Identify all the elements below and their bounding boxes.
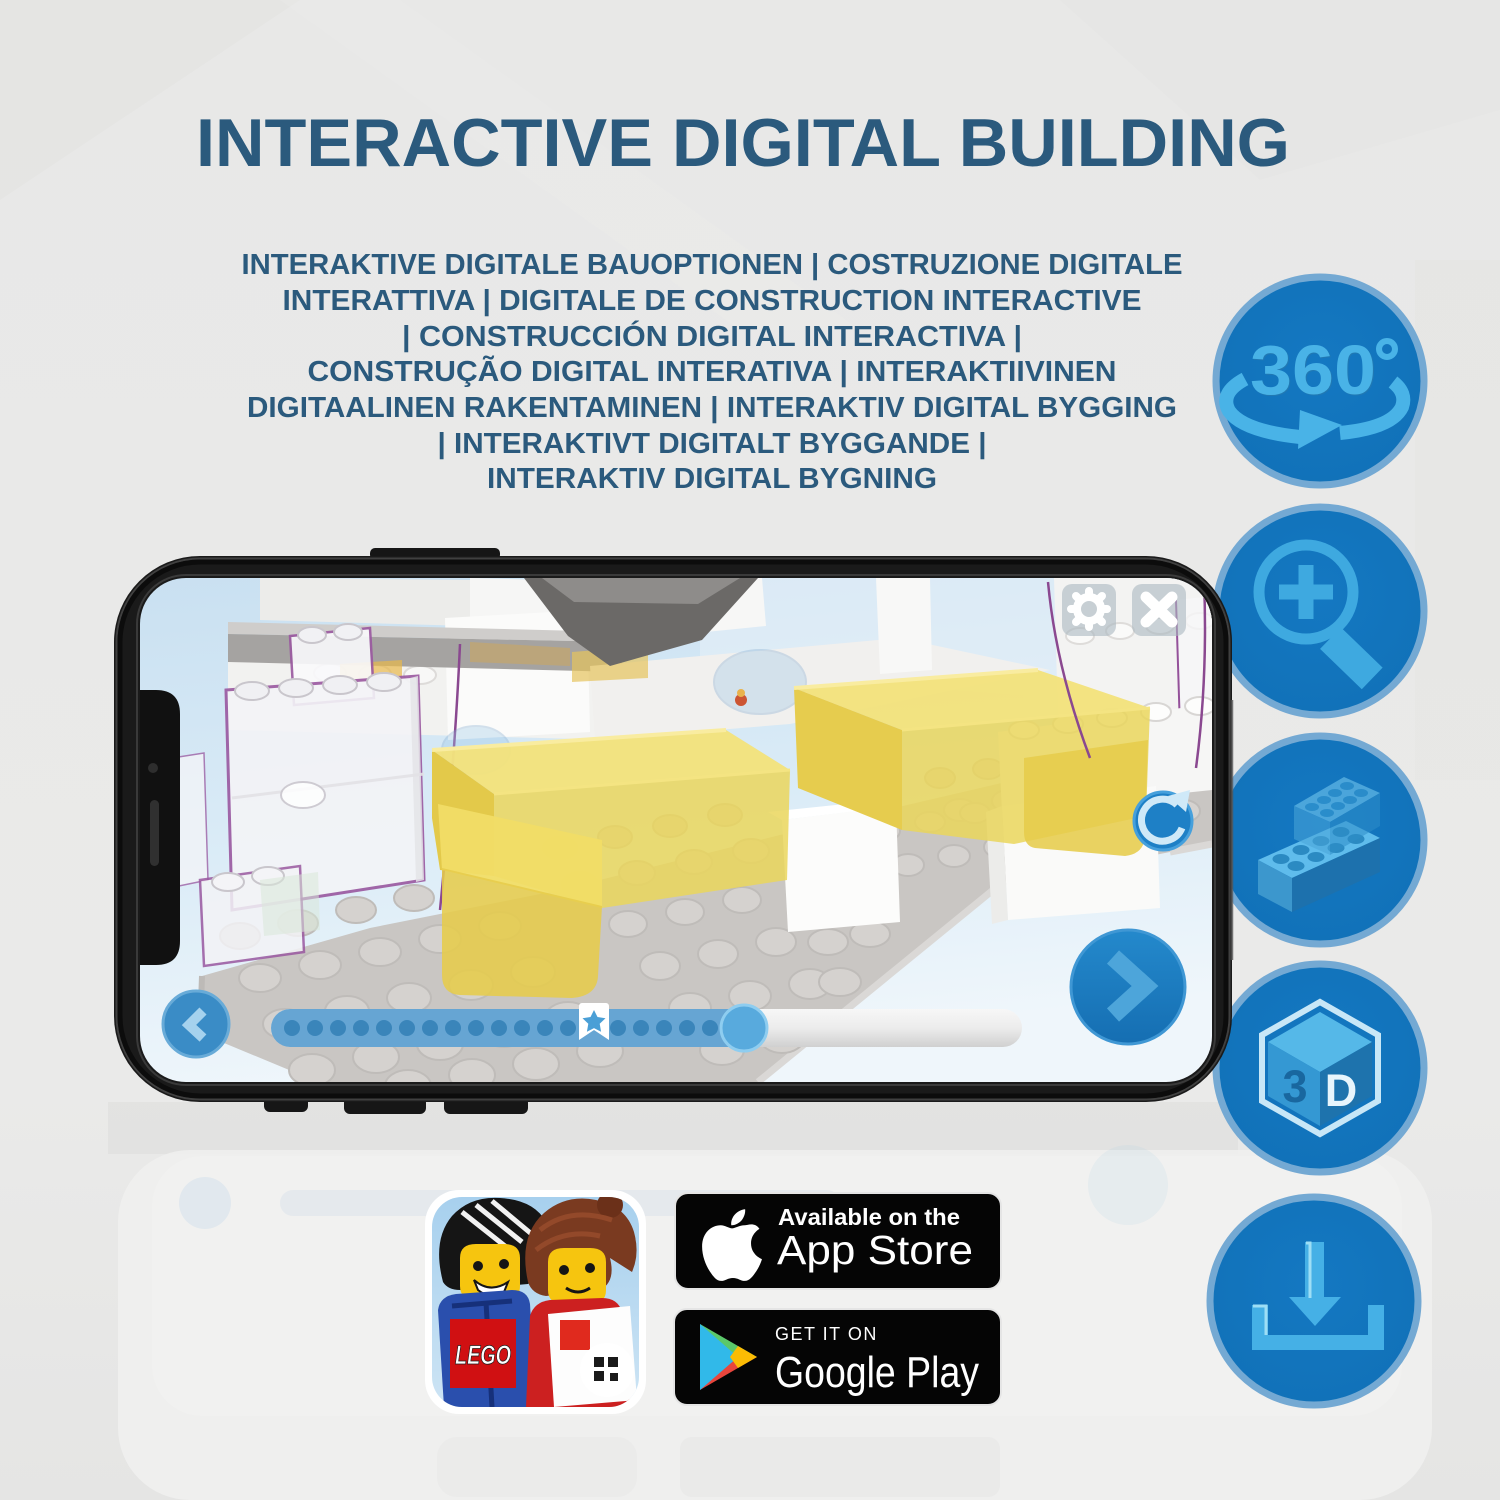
svg-text:Google Play: Google Play xyxy=(775,1348,979,1397)
svg-text:INTERACTIVE DIGITAL BUILDING: INTERACTIVE DIGITAL BUILDING xyxy=(196,105,1290,181)
svg-text:CONSTRUÇÃO DIGITAL INTERATIVA: CONSTRUÇÃO DIGITAL INTERATIVA | INTERAKT… xyxy=(308,354,1117,388)
svg-text:INTERAKTIVE DIGITALE BAUOPTION: INTERAKTIVE DIGITALE BAUOPTIONEN | COSTR… xyxy=(242,249,1183,281)
svg-text:D: D xyxy=(1325,1065,1358,1116)
svg-text:LEGO: LEGO xyxy=(455,1340,511,1370)
svg-text:| INTERAKTIVT DIGITALT BYGGAND: | INTERAKTIVT DIGITALT BYGGANDE | xyxy=(438,428,987,460)
svg-text:GET IT ON: GET IT ON xyxy=(775,1324,878,1344)
svg-text:App Store: App Store xyxy=(777,1227,973,1273)
svg-text:3: 3 xyxy=(1282,1061,1307,1112)
svg-text:INTERAKTIV DIGITAL BYGNING: INTERAKTIV DIGITAL BYGNING xyxy=(487,463,937,495)
svg-text:INTERATTIVA | DIGITALE DE CONS: INTERATTIVA | DIGITALE DE CONSTRUCTION I… xyxy=(283,285,1142,317)
svg-text:| CONSTRUCCIÓN DIGITAL INTERAC: | CONSTRUCCIÓN DIGITAL INTERACTIVA | xyxy=(402,319,1022,353)
svg-text:360: 360 xyxy=(1250,331,1376,409)
svg-text:DIGITAALINEN RAKENTAMINEN | IN: DIGITAALINEN RAKENTAMINEN | INTERAKTIV D… xyxy=(247,392,1177,424)
